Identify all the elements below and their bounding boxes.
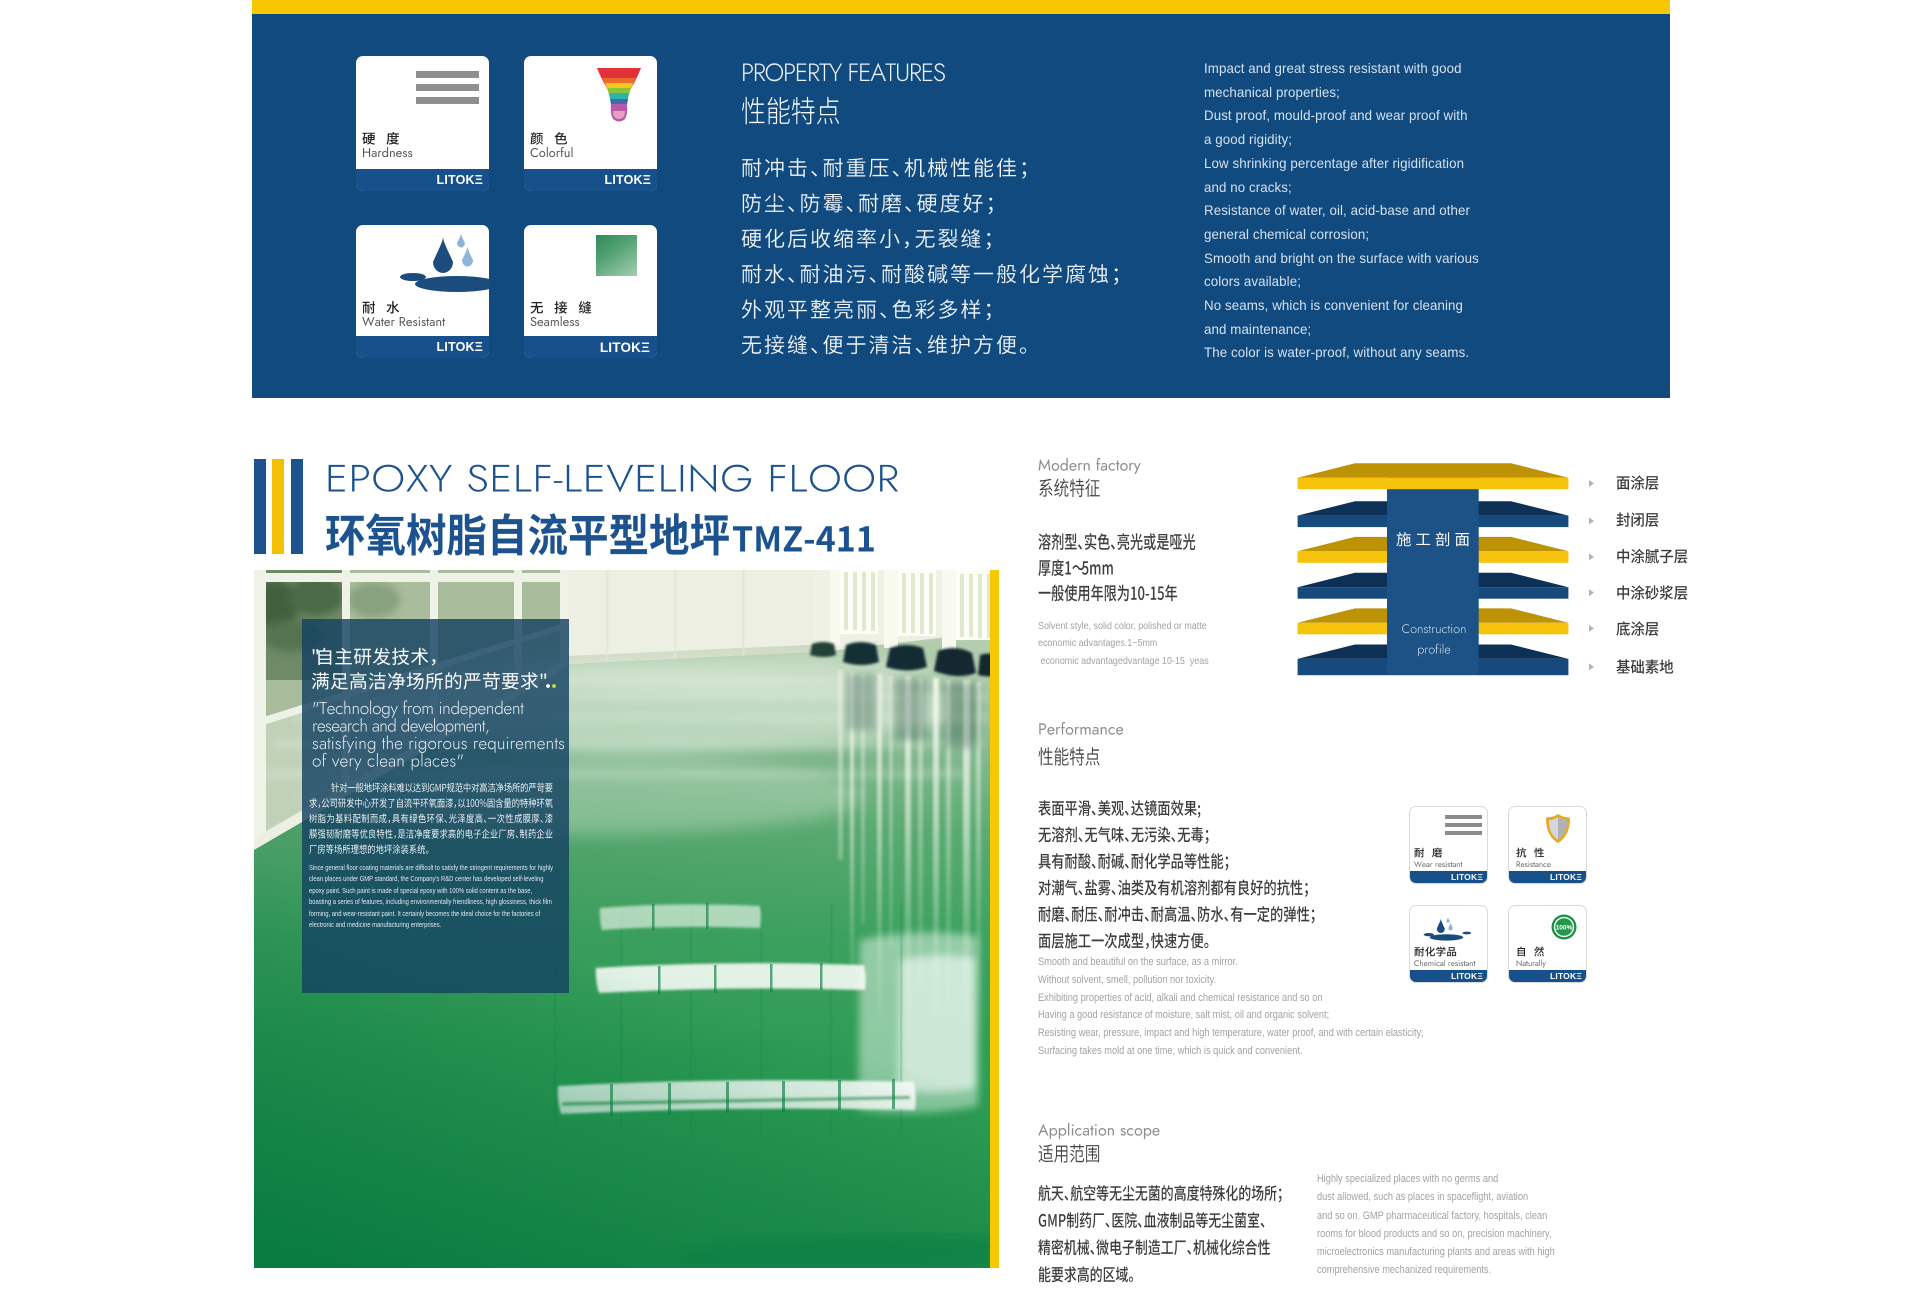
svg-text:100%: 100% xyxy=(1556,925,1573,932)
